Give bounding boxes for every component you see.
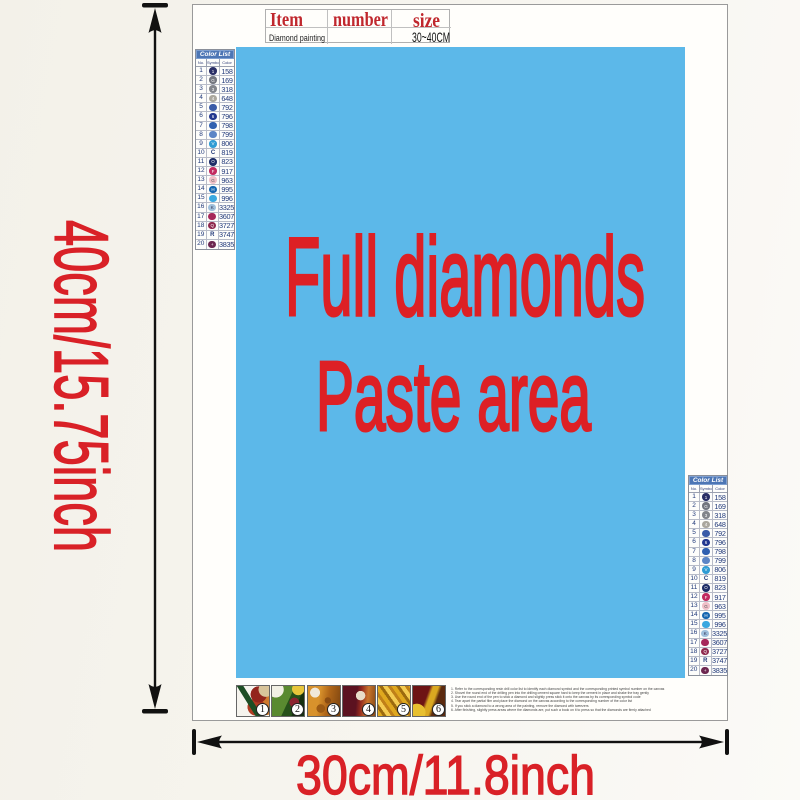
svg-text:Paste area: Paste area (316, 341, 591, 451)
svg-text:40cm/15.75inch: 40cm/15.75inch (38, 220, 123, 552)
svg-text:Full diamonds: Full diamonds (285, 215, 645, 339)
svg-text:Item: Item (270, 10, 303, 31)
svg-text:30~40CM: 30~40CM (412, 29, 450, 44)
svg-text:30cm/11.8inch: 30cm/11.8inch (296, 744, 595, 800)
svg-text:number: number (333, 10, 388, 31)
svg-text:Diamond painting: Diamond painting (269, 33, 325, 43)
